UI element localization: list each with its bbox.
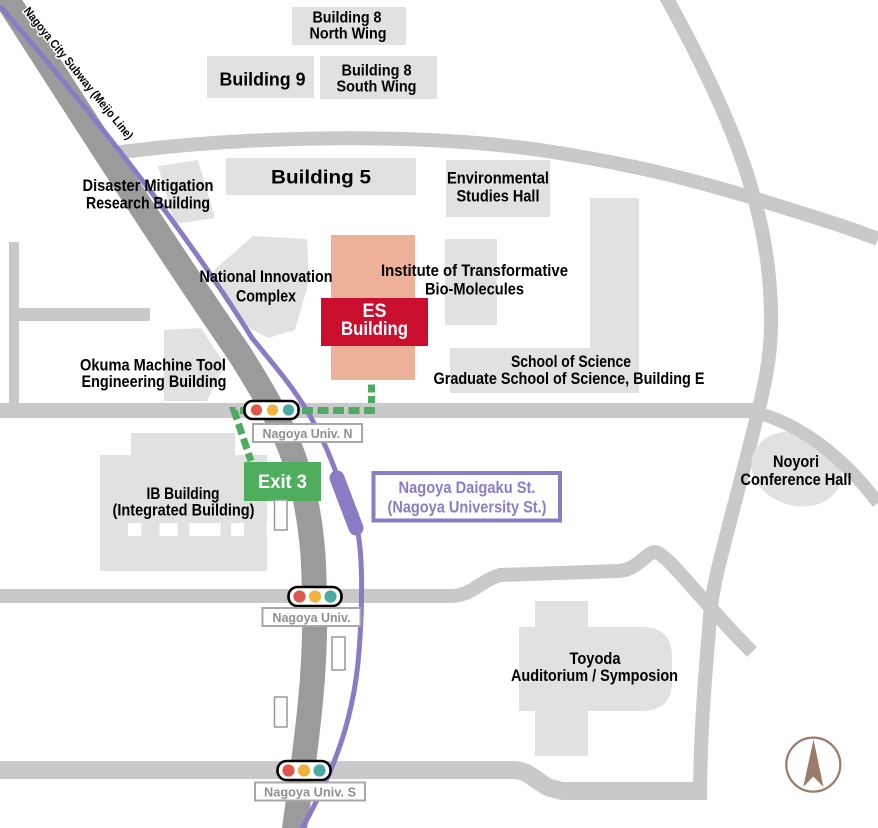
svg-text:Noyori: Noyori	[773, 453, 819, 471]
svg-text:Building 5: Building 5	[271, 168, 371, 189]
svg-text:Engineering Building: Engineering Building	[82, 373, 227, 391]
svg-text:Nagoya Daigaku St.: Nagoya Daigaku St.	[399, 479, 536, 497]
svg-text:North Wing: North Wing	[310, 26, 387, 43]
svg-text:South Wing: South Wing	[337, 79, 417, 96]
svg-text:Toyoda: Toyoda	[570, 650, 622, 668]
svg-text:(Integrated Building): (Integrated Building)	[113, 502, 255, 520]
svg-text:Nagoya Univ. S: Nagoya Univ. S	[264, 785, 356, 800]
svg-text:Disaster Mitigation: Disaster Mitigation	[83, 177, 214, 195]
svg-text:Nagoya Univ.: Nagoya Univ.	[273, 610, 351, 625]
svg-text:Institute of Transformative: Institute of Transformative	[381, 262, 568, 280]
svg-text:Complex: Complex	[236, 288, 297, 306]
svg-text:IB Building: IB Building	[147, 485, 220, 503]
svg-text:Building: Building	[341, 319, 408, 340]
svg-text:Bio-Molecules: Bio-Molecules	[425, 281, 524, 299]
svg-text:Auditorium / Symposion: Auditorium / Symposion	[511, 667, 678, 685]
svg-text:Studies Hall: Studies Hall	[457, 188, 540, 206]
svg-text:Nagoya Univ. N: Nagoya Univ. N	[263, 426, 353, 441]
svg-text:Exit 3: Exit 3	[258, 472, 307, 493]
svg-text:Research Building: Research Building	[86, 195, 210, 213]
svg-text:Environmental: Environmental	[447, 170, 549, 188]
svg-text:Conference Hall: Conference Hall	[741, 471, 852, 489]
svg-text:Building 8: Building 8	[313, 10, 382, 27]
svg-text:National Innovation: National Innovation	[200, 268, 333, 286]
svg-text:Okuma Machine Tool: Okuma Machine Tool	[80, 357, 226, 375]
svg-text:Graduate School of Science, Bu: Graduate School of Science, Building E	[434, 369, 705, 388]
svg-text:Building 8: Building 8	[342, 63, 412, 80]
svg-text:Building 9: Building 9	[220, 70, 306, 90]
svg-text:(Nagoya University St.): (Nagoya University St.)	[388, 499, 547, 517]
